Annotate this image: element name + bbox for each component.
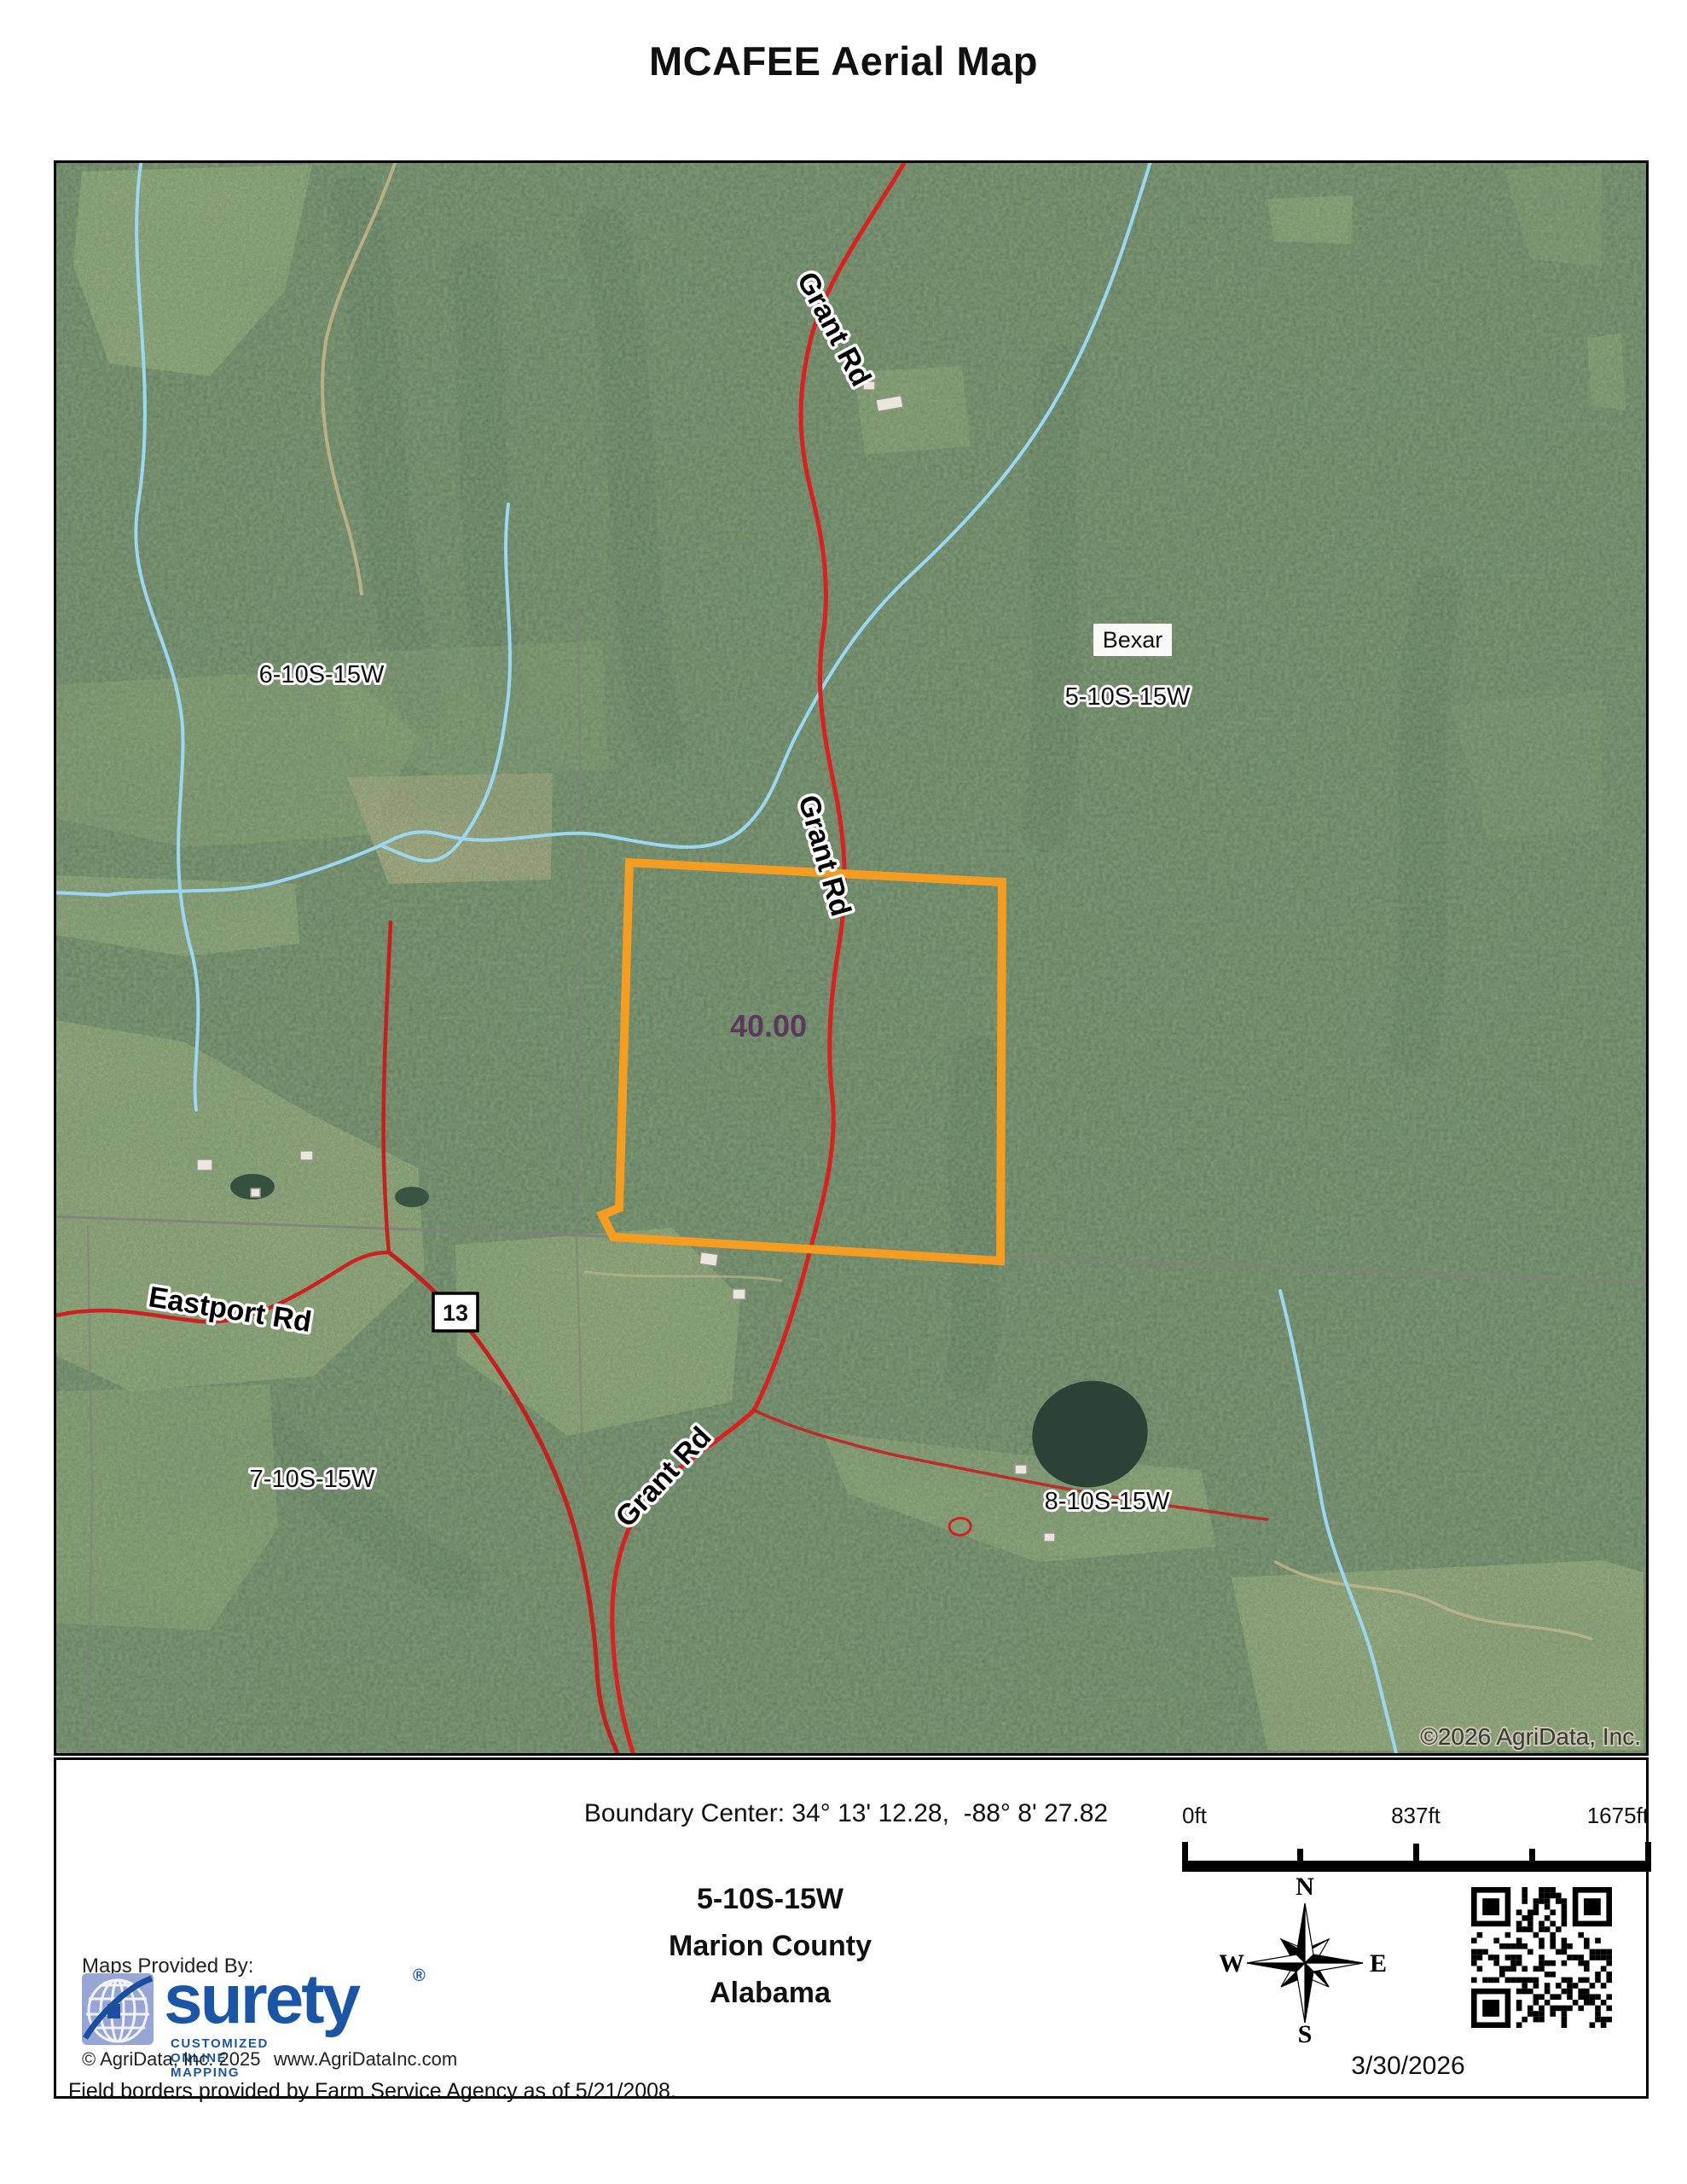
compass-e: E	[1370, 1949, 1387, 1978]
agridata-copyright: © AgriData, Inc. 2025	[82, 2048, 260, 2071]
location-section: 5-10S-15W	[531, 1876, 1009, 1923]
svg-text:13: 13	[443, 1300, 468, 1326]
highway-13-shield: 13	[433, 1293, 478, 1331]
label-section-se: 8-10S-15W	[1045, 1488, 1170, 1515]
aerial-map: 40.00 Grant Rd Grant Rd Grant Rd Eastpor…	[54, 160, 1649, 1756]
map-watermark: ©2026 AgriData, Inc.	[1420, 1723, 1641, 1750]
terrain	[56, 163, 1646, 1753]
surety-brand: surety ® CUSTOMIZED ONLINE MAPPING	[82, 1973, 154, 2047]
field-borders-note: Field borders provided by Farm Service A…	[68, 2079, 676, 2104]
map-date: 3/30/2026	[1289, 2052, 1528, 2081]
compass-s: S	[1298, 2020, 1313, 2048]
svg-text:Bexar: Bexar	[1103, 627, 1163, 653]
location-county: Marion County	[531, 1923, 1009, 1970]
label-section-ne: 5-10S-15W	[1065, 683, 1191, 711]
registered-mark: ®	[413, 1966, 426, 1986]
label-section-nw: 6-10S-15W	[259, 661, 385, 688]
scale-label-end: 1675ft	[1529, 1803, 1649, 1829]
location-block: 5-10S-15W Marion County Alabama	[531, 1876, 1009, 2017]
parcel-acreage-label: 40.00	[730, 1008, 807, 1043]
compass-n: N	[1296, 1873, 1314, 1901]
compass-rose: N S W E	[1220, 1867, 1390, 2059]
label-section-sw: 7-10S-15W	[250, 1466, 375, 1493]
map-footer: Boundary Center: 34° 13' 12.28, -88° 8' …	[54, 1757, 1649, 2099]
compass-star	[1247, 1903, 1363, 2023]
page: MCAFEE Aerial Map	[0, 0, 1687, 2184]
compass-w: W	[1220, 1949, 1244, 1978]
agridata-website: www.AgriDataInc.com	[274, 2048, 457, 2071]
qr-code	[1471, 1887, 1612, 2028]
location-state: Alabama	[531, 1970, 1009, 2017]
surety-wordmark: surety	[164, 1960, 358, 2040]
page-title: MCAFEE Aerial Map	[0, 38, 1687, 84]
aerial-map-canvas: 40.00 Grant Rd Grant Rd Grant Rd Eastpor…	[56, 163, 1646, 1753]
scale-label-start: 0ft	[1182, 1803, 1207, 1829]
place-label-bexar: Bexar	[1093, 624, 1172, 656]
scale-label-mid: 837ft	[1296, 1803, 1535, 1829]
surety-globe-icon	[82, 1973, 154, 2045]
